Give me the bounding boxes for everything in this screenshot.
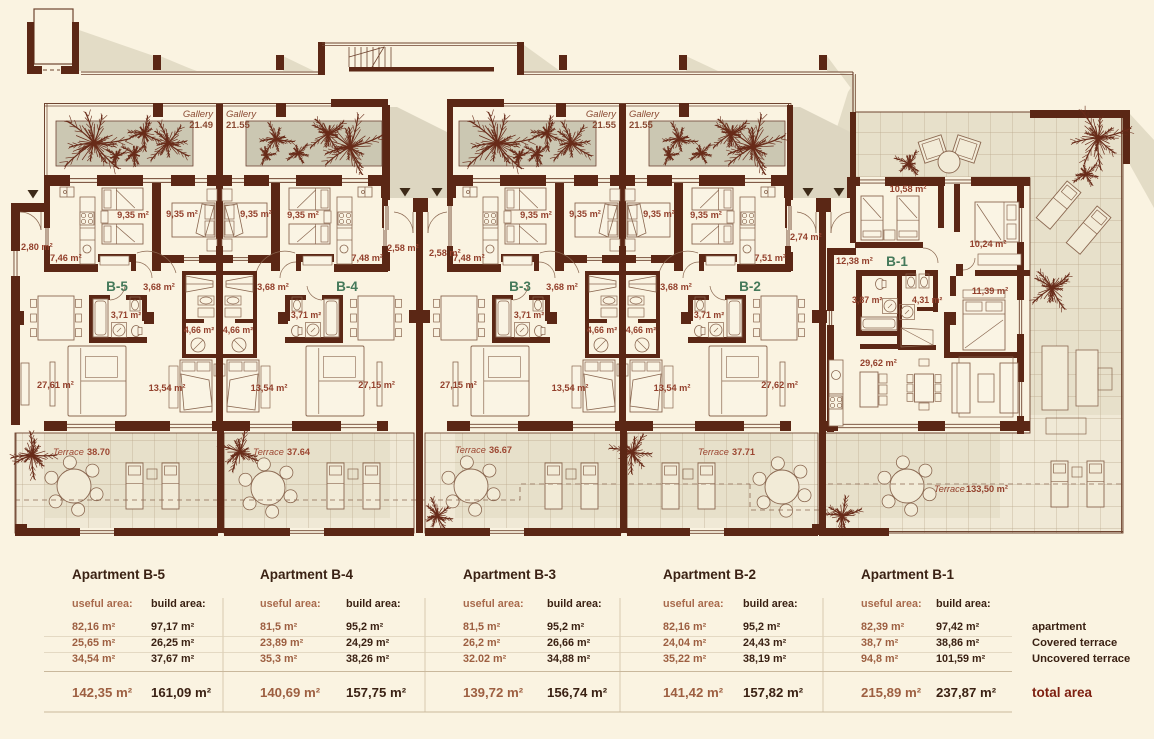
svg-text:Gallery: Gallery [586, 109, 617, 120]
svg-text:139,72 m²: 139,72 m² [463, 685, 524, 700]
svg-text:4,31 m²: 4,31 m² [912, 295, 942, 305]
svg-text:38,86 m²: 38,86 m² [936, 637, 980, 649]
svg-text:useful area:: useful area: [463, 598, 524, 610]
svg-text:4,66 m²: 4,66 m² [184, 325, 214, 335]
svg-text:9,35 m²: 9,35 m² [117, 210, 149, 220]
svg-text:140,69 m²: 140,69 m² [260, 685, 321, 700]
svg-text:useful area:: useful area: [72, 598, 133, 610]
svg-text:3,68 m²: 3,68 m² [660, 282, 692, 292]
svg-text:Apartment B-5: Apartment B-5 [72, 567, 166, 582]
svg-text:35,3 m²: 35,3 m² [260, 653, 298, 665]
svg-text:2,58 m²: 2,58 m² [387, 243, 419, 253]
svg-text:95,2 m²: 95,2 m² [346, 621, 384, 633]
svg-text:9,35 m²: 9,35 m² [166, 209, 198, 219]
svg-text:Terrace: Terrace [934, 484, 965, 494]
svg-text:13,54 m²: 13,54 m² [251, 383, 288, 393]
svg-text:23,89 m²: 23,89 m² [260, 637, 304, 649]
svg-text:34,54 m²: 34,54 m² [72, 653, 116, 665]
svg-text:4,66 m²: 4,66 m² [587, 325, 617, 335]
svg-text:38,19 m²: 38,19 m² [743, 653, 787, 665]
svg-text:95,2 m²: 95,2 m² [547, 621, 585, 633]
svg-text:101,59 m²: 101,59 m² [936, 653, 986, 665]
svg-text:4,66 m²: 4,66 m² [626, 325, 656, 335]
svg-text:B-4: B-4 [336, 279, 358, 294]
svg-text:9,35 m²: 9,35 m² [287, 210, 319, 220]
svg-text:3,71 m²: 3,71 m² [111, 310, 141, 320]
svg-text:build area:: build area: [346, 598, 401, 610]
svg-text:97,42 m²: 97,42 m² [936, 621, 980, 633]
svg-text:26,66 m²: 26,66 m² [547, 637, 591, 649]
svg-text:Gallery: Gallery [183, 109, 214, 120]
svg-text:Terrace: Terrace [455, 445, 486, 455]
svg-text:useful area:: useful area: [260, 598, 321, 610]
svg-text:237,87 m²: 237,87 m² [936, 685, 997, 700]
svg-text:156,74 m²: 156,74 m² [547, 685, 608, 700]
svg-text:82,16 m²: 82,16 m² [72, 621, 116, 633]
svg-text:10,58 m²: 10,58 m² [890, 184, 927, 194]
svg-text:3,71 m²: 3,71 m² [694, 310, 724, 320]
svg-text:2,74 m²: 2,74 m² [790, 232, 822, 242]
svg-text:apartment: apartment [1032, 621, 1086, 633]
svg-text:7,48 m²: 7,48 m² [351, 253, 383, 263]
svg-text:2,80 m²: 2,80 m² [21, 242, 53, 252]
svg-text:useful area:: useful area: [861, 598, 922, 610]
svg-text:Apartment B-3: Apartment B-3 [463, 567, 557, 582]
svg-text:9,35 m²: 9,35 m² [643, 209, 675, 219]
svg-text:Apartment B-2: Apartment B-2 [663, 567, 756, 582]
svg-text:12,38 m²: 12,38 m² [836, 256, 873, 266]
svg-text:9,35 m²: 9,35 m² [520, 210, 552, 220]
svg-text:37.64: 37.64 [287, 447, 311, 457]
svg-text:9,35 m²: 9,35 m² [240, 209, 272, 219]
svg-text:B-2: B-2 [739, 279, 761, 294]
svg-text:34,88 m²: 34,88 m² [547, 653, 591, 665]
svg-text:21.55: 21.55 [629, 120, 653, 131]
svg-text:9,35 m²: 9,35 m² [569, 209, 601, 219]
svg-text:81,5 m²: 81,5 m² [463, 621, 501, 633]
svg-text:27,15 m²: 27,15 m² [358, 380, 395, 390]
svg-text:build area:: build area: [936, 598, 991, 610]
svg-text:81,5 m²: 81,5 m² [260, 621, 298, 633]
svg-text:build area:: build area: [743, 598, 798, 610]
svg-text:25,65 m²: 25,65 m² [72, 637, 116, 649]
svg-text:27,61 m²: 27,61 m² [37, 380, 74, 390]
svg-text:157,82 m²: 157,82 m² [743, 685, 804, 700]
svg-text:7,46 m²: 7,46 m² [50, 253, 82, 263]
svg-text:4,66 m²: 4,66 m² [223, 325, 253, 335]
svg-text:Terrace: Terrace [253, 447, 284, 457]
svg-text:2,58 m²: 2,58 m² [429, 248, 461, 258]
svg-text:Uncovered terrace: Uncovered terrace [1032, 653, 1130, 665]
svg-text:38.70: 38.70 [87, 447, 110, 457]
svg-text:94,8 m²: 94,8 m² [861, 653, 899, 665]
svg-text:95,2 m²: 95,2 m² [743, 621, 781, 633]
svg-text:26,2 m²: 26,2 m² [463, 637, 501, 649]
svg-text:21.49: 21.49 [189, 120, 213, 131]
svg-text:24,04 m²: 24,04 m² [663, 637, 707, 649]
svg-text:97,17 m²: 97,17 m² [151, 621, 195, 633]
svg-text:13,54 m²: 13,54 m² [552, 383, 589, 393]
svg-text:Terrace: Terrace [698, 447, 729, 457]
svg-text:Gallery: Gallery [226, 109, 257, 120]
svg-text:10,24 m²: 10,24 m² [970, 239, 1007, 249]
svg-text:11,39 m²: 11,39 m² [972, 286, 1008, 296]
svg-text:157,75 m²: 157,75 m² [346, 685, 407, 700]
svg-text:3,87 m²: 3,87 m² [852, 295, 882, 305]
svg-text:3,71 m²: 3,71 m² [514, 310, 544, 320]
svg-text:36.67: 36.67 [489, 445, 512, 455]
svg-text:141,42 m²: 141,42 m² [663, 685, 724, 700]
svg-text:26,25 m²: 26,25 m² [151, 637, 195, 649]
svg-text:Covered terrace: Covered terrace [1032, 637, 1117, 649]
svg-text:38,7 m²: 38,7 m² [861, 637, 899, 649]
svg-text:3,68 m²: 3,68 m² [546, 282, 578, 292]
svg-text:21.55: 21.55 [592, 120, 616, 131]
svg-text:37.71: 37.71 [732, 447, 755, 457]
svg-text:161,09 m²: 161,09 m² [151, 685, 212, 700]
svg-text:133,50 m²: 133,50 m² [966, 484, 1008, 494]
svg-text:3,68 m²: 3,68 m² [257, 282, 289, 292]
svg-text:82,39 m²: 82,39 m² [861, 621, 905, 633]
svg-text:29,62 m²: 29,62 m² [860, 358, 897, 368]
svg-text:24,29 m²: 24,29 m² [346, 637, 390, 649]
svg-text:build area:: build area: [151, 598, 206, 610]
svg-text:35,22 m²: 35,22 m² [663, 653, 707, 665]
svg-text:useful area:: useful area: [663, 598, 724, 610]
svg-text:9,35 m²: 9,35 m² [690, 210, 722, 220]
svg-text:3,71 m²: 3,71 m² [291, 310, 321, 320]
svg-text:82,16 m²: 82,16 m² [663, 621, 707, 633]
svg-text:27,15 m²: 27,15 m² [440, 380, 477, 390]
svg-text:total area: total area [1032, 685, 1093, 700]
svg-text:B-1: B-1 [886, 254, 908, 269]
svg-text:27,62 m²: 27,62 m² [761, 380, 798, 390]
svg-text:Apartment B-1: Apartment B-1 [861, 567, 955, 582]
svg-text:24,43 m²: 24,43 m² [743, 637, 787, 649]
svg-text:13,54 m²: 13,54 m² [654, 383, 691, 393]
svg-text:7,51 m²: 7,51 m² [754, 253, 786, 263]
svg-text:37,67 m²: 37,67 m² [151, 653, 195, 665]
svg-text:Terrace: Terrace [53, 447, 84, 457]
svg-text:build area:: build area: [547, 598, 602, 610]
svg-text:13,54 m²: 13,54 m² [149, 383, 186, 393]
svg-text:142,35 m²: 142,35 m² [72, 685, 133, 700]
svg-text:Apartment B-4: Apartment B-4 [260, 567, 354, 582]
svg-text:32.02 m²: 32.02 m² [463, 653, 507, 665]
svg-text:215,89 m²: 215,89 m² [861, 685, 922, 700]
svg-text:21.55: 21.55 [226, 120, 250, 131]
svg-text:3,68 m²: 3,68 m² [143, 282, 175, 292]
svg-text:38,26 m²: 38,26 m² [346, 653, 390, 665]
svg-text:Gallery: Gallery [629, 109, 660, 120]
